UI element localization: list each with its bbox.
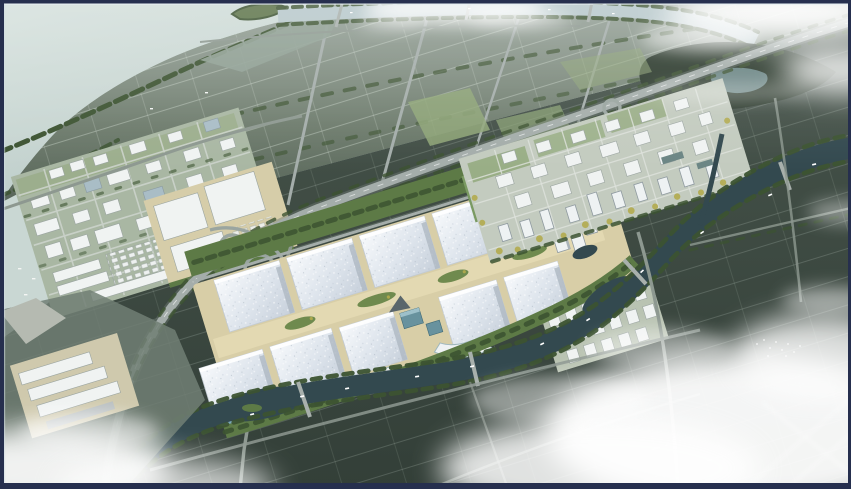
- atmospheric-haze: [0, 0, 851, 489]
- frame-inner-highlight: [4, 4, 5, 483]
- frame-left: [0, 0, 4, 489]
- frame-top: [0, 0, 851, 4]
- aerial-rendering: [0, 0, 851, 489]
- frame-inner-highlight: [4, 4, 848, 5]
- frame-bottom: [0, 483, 851, 489]
- screenshot-stage: [0, 0, 851, 489]
